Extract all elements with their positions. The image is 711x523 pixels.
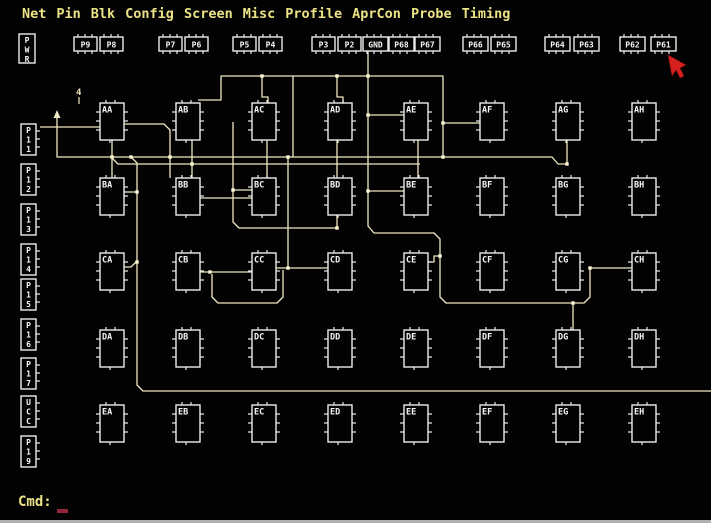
block-label: CH (634, 256, 644, 266)
net-wire[interactable] (262, 76, 268, 104)
pin-label-char: 1 (26, 216, 31, 225)
net-wire[interactable] (233, 122, 337, 228)
pin-label: P5 (240, 41, 250, 50)
net-wire[interactable] (428, 256, 440, 262)
top-pin-p7[interactable]: P7 (159, 34, 182, 54)
block-label: DH (634, 333, 644, 343)
block-BA[interactable]: BA (96, 175, 128, 218)
left-pin-p19[interactable]: P19 (21, 436, 40, 467)
block-label: BG (558, 181, 568, 191)
pin-label-char: 9 (26, 457, 31, 466)
block-AC[interactable]: AC (248, 100, 280, 143)
left-pin-p16[interactable]: P16 (21, 319, 40, 350)
top-pin-p6[interactable]: P6 (185, 34, 208, 54)
pin-label: P61 (656, 41, 671, 50)
top-pin-p5[interactable]: P5 (233, 34, 256, 54)
wire-junction (168, 155, 171, 158)
block-DA[interactable]: DA (96, 327, 128, 370)
block-label: AF (482, 106, 492, 116)
pin-label-char: R (25, 55, 30, 64)
block-label: EA (102, 408, 112, 418)
net-wire[interactable] (337, 76, 343, 104)
block-CA[interactable]: CA (96, 250, 128, 293)
block-CE[interactable]: CE (400, 250, 432, 293)
pin-label-char: 1 (26, 256, 31, 265)
pin-label-char: 1 (26, 370, 31, 379)
pin-label-char: 5 (26, 300, 31, 309)
wire-junction (565, 162, 568, 165)
block-label: BB (178, 181, 188, 191)
wire-junction (335, 226, 338, 229)
wire-junction (441, 121, 444, 124)
pin-label: P65 (496, 41, 511, 50)
pin-label-char: 1 (26, 448, 31, 457)
block-EH[interactable]: EH (628, 402, 660, 445)
block-label: EG (558, 408, 568, 418)
block-BG[interactable]: BG (552, 175, 584, 218)
pin-label: P63 (579, 41, 594, 50)
block-AF[interactable]: AF (476, 100, 508, 143)
block-EE[interactable]: EE (400, 402, 432, 445)
pin-label-char: 1 (26, 176, 31, 185)
pin-label: P6 (192, 41, 202, 50)
wire-junction (231, 188, 234, 191)
block-label: DD (330, 333, 340, 343)
marker-4-label: 4 (76, 88, 82, 98)
wire-junction (286, 266, 289, 269)
pin-label-char: P (26, 321, 31, 330)
block-label: EH (634, 408, 644, 418)
wire-junction (571, 301, 574, 304)
block-label: CD (330, 256, 340, 266)
top-pin-p65[interactable]: P65 (491, 34, 516, 54)
block-CC[interactable]: CC (248, 250, 280, 293)
block-DE[interactable]: DE (400, 327, 432, 370)
top-pin-p68[interactable]: P68 (389, 34, 414, 54)
block-CH[interactable]: CH (628, 250, 660, 293)
wire-junction (286, 155, 289, 158)
block-label: ED (330, 408, 340, 418)
pin-label-char: C (26, 408, 31, 417)
block-label: EC (254, 408, 264, 418)
block-label: CG (558, 256, 568, 266)
block-DF[interactable]: DF (476, 327, 508, 370)
block-label: EF (482, 408, 492, 418)
block-label: CF (482, 256, 492, 266)
block-label: BH (634, 181, 644, 191)
pin-label-char: 3 (26, 225, 31, 234)
block-label: AA (102, 106, 112, 116)
pin-label-char: P (26, 438, 31, 447)
top-pin-p64[interactable]: P64 (545, 34, 570, 54)
pin-label: P66 (468, 41, 483, 50)
pin-label-char: 1 (26, 136, 31, 145)
pin-label-char: P (26, 281, 31, 290)
wire-junction (260, 74, 263, 77)
left-pin-pwr[interactable]: PWR (19, 34, 35, 64)
wire-junction (190, 162, 193, 165)
wire-arrow-terminal (54, 110, 61, 118)
block-label: CB (178, 256, 188, 266)
block-label: EE (406, 408, 416, 418)
pin-label-char: P (26, 360, 31, 369)
block-CG[interactable]: CG (552, 250, 584, 293)
wire-junction (208, 270, 211, 273)
block-label: DF (482, 333, 492, 343)
pin-label: P4 (266, 41, 276, 50)
block-ED[interactable]: ED (324, 402, 356, 445)
block-EC[interactable]: EC (248, 402, 280, 445)
block-BF[interactable]: BF (476, 175, 508, 218)
block-label: AB (178, 106, 188, 116)
net-wire[interactable] (111, 157, 420, 164)
block-label: BE (406, 181, 416, 191)
block-label: AD (330, 106, 340, 116)
left-pin-p12[interactable]: P12 (21, 164, 40, 195)
block-DD[interactable]: DD (324, 327, 356, 370)
block-CB[interactable]: CB (172, 250, 204, 293)
pin-label: P7 (166, 41, 176, 50)
pin-label-char: P (26, 246, 31, 255)
wire-junction (335, 74, 338, 77)
block-DC[interactable]: DC (248, 327, 280, 370)
top-pin-p66[interactable]: P66 (463, 34, 488, 54)
top-pin-p2[interactable]: P2 (338, 34, 361, 54)
wire-junction (135, 190, 138, 193)
pin-label-char: W (25, 46, 30, 55)
block-label: BA (102, 181, 112, 191)
pin-label-char: P (26, 166, 31, 175)
block-label: DB (178, 333, 188, 343)
block-CF[interactable]: CF (476, 250, 508, 293)
pin-label: P3 (319, 41, 329, 50)
block-DB[interactable]: DB (172, 327, 204, 370)
wire-junction (441, 155, 444, 158)
pin-label-char: 6 (26, 340, 31, 349)
top-pin-p3[interactable]: P3 (312, 34, 335, 54)
block-label: AH (634, 106, 644, 116)
pin-label-char: P (26, 206, 31, 215)
wire-junction (438, 254, 441, 257)
pin-label-char: U (26, 398, 31, 407)
block-label: CA (102, 256, 112, 266)
block-AB[interactable]: AB (172, 100, 204, 143)
wire-junction (129, 155, 132, 158)
left-pin-ucc[interactable]: UCC (21, 396, 40, 427)
wire-junction (366, 189, 369, 192)
wire-junction (366, 113, 369, 116)
block-BD[interactable]: BD (324, 175, 356, 218)
block-label: DE (406, 333, 416, 343)
pin-label: P8 (107, 41, 117, 50)
pin-label-char: 4 (26, 265, 31, 274)
pin-label: P9 (81, 41, 91, 50)
block-BH[interactable]: BH (628, 175, 660, 218)
block-label: AC (254, 106, 264, 116)
pin-label-char: P (26, 126, 31, 135)
block-EA[interactable]: EA (96, 402, 128, 445)
block-DH[interactable]: DH (628, 327, 660, 370)
left-pin-p15[interactable]: P15 (21, 279, 40, 310)
wire-junction (366, 74, 369, 77)
wire-junction (110, 155, 113, 158)
block-BC[interactable]: BC (248, 175, 280, 218)
block-label: EB (178, 408, 188, 418)
pin-label-char: 1 (26, 291, 31, 300)
net-wire[interactable] (124, 124, 170, 178)
pin-label: P62 (625, 41, 640, 50)
block-label: DC (254, 333, 264, 343)
block-label: CC (254, 256, 264, 266)
top-pin-p4[interactable]: P4 (259, 34, 282, 54)
schematic-canvas[interactable]: 4AAABACADAEAFAGAHBABBBCBDBEBFBGBHCACBCCC… (0, 0, 711, 523)
pin-label: P2 (345, 41, 355, 50)
block-AA[interactable]: AA (96, 100, 128, 143)
pin-label-char: 1 (26, 145, 31, 154)
pin-label: P68 (394, 41, 409, 50)
left-pin-p14[interactable]: P14 (21, 244, 40, 275)
left-pin-p13[interactable]: P13 (21, 204, 40, 235)
block-AH[interactable]: AH (628, 100, 660, 143)
top-pin-p62[interactable]: P62 (620, 34, 645, 54)
block-DG[interactable]: DG (552, 327, 584, 370)
wire-junction (588, 266, 591, 269)
top-pin-p8[interactable]: P8 (100, 34, 123, 54)
top-pin-p67[interactable]: P67 (415, 34, 440, 54)
block-label: DG (558, 333, 568, 343)
top-pin-p9[interactable]: P9 (74, 34, 97, 54)
pin-label-char: 7 (26, 379, 31, 388)
block-BE[interactable]: BE (400, 175, 432, 218)
command-input-cursor[interactable] (57, 509, 68, 513)
top-pin-p63[interactable]: P63 (574, 34, 599, 54)
block-BB[interactable]: BB (172, 175, 204, 218)
block-label: DA (102, 333, 112, 343)
wire-junction (135, 260, 138, 263)
pin-label-char: 2 (26, 185, 31, 194)
block-AE[interactable]: AE (400, 100, 432, 143)
block-EF[interactable]: EF (476, 402, 508, 445)
command-prompt-label: Cmd: (18, 494, 52, 510)
left-pin-p11[interactable]: P11 (21, 124, 40, 155)
block-label: AE (406, 106, 416, 116)
application-screen: NetPinBlkConfigScreenMiscProfileAprConPr… (0, 0, 711, 523)
pin-label: GND (368, 41, 383, 50)
block-label: BC (254, 181, 264, 191)
pin-label-char: C (26, 417, 31, 426)
block-label: BF (482, 181, 492, 191)
block-label: AG (558, 106, 568, 116)
pin-label: P64 (550, 41, 565, 50)
block-AG[interactable]: AG (552, 100, 584, 143)
block-label: CE (406, 256, 416, 266)
block-CD[interactable]: CD (324, 250, 356, 293)
top-pin-p61[interactable]: P61 (651, 34, 676, 54)
block-EB[interactable]: EB (172, 402, 204, 445)
left-pin-p17[interactable]: P17 (21, 358, 40, 389)
pin-label-char: 1 (26, 331, 31, 340)
block-EG[interactable]: EG (552, 402, 584, 445)
block-label: BD (330, 181, 340, 191)
top-pin-gnd[interactable]: GND (363, 34, 388, 54)
mouse-cursor (668, 55, 686, 78)
pin-label-char: P (25, 36, 30, 45)
block-AD[interactable]: AD (324, 100, 356, 143)
pin-label: P67 (420, 41, 435, 50)
